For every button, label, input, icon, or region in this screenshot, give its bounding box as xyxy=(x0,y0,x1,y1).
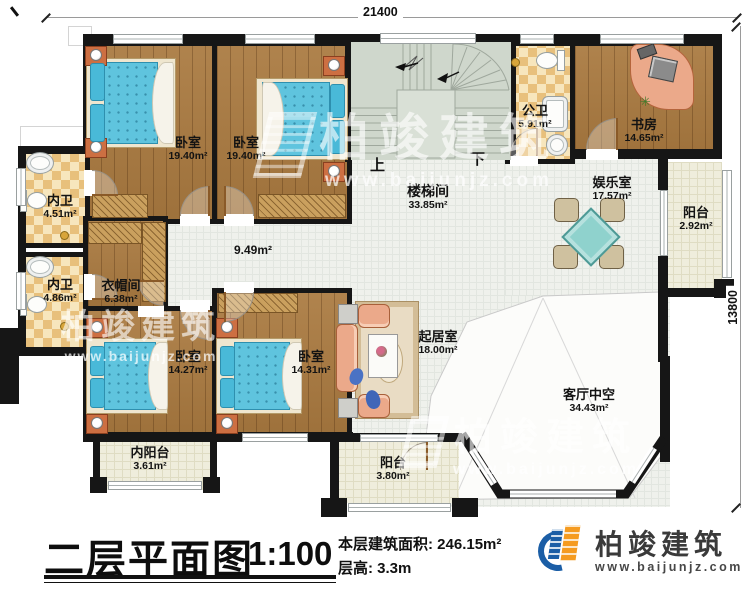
wall-ent-right-lower xyxy=(658,256,668,362)
title-block: 二层平面图 1:100 本层建筑面积: 246.15m² 层高: 3.3m 柏竣… xyxy=(0,525,750,593)
dimension-tick xyxy=(41,13,51,23)
bed-pillow xyxy=(90,63,105,101)
bed-pillow xyxy=(90,378,105,408)
floor-height-row: 层高: 3.3m xyxy=(338,557,501,581)
nightstand xyxy=(86,414,108,434)
door-gap xyxy=(586,149,618,160)
drawing-scale: 1:100 xyxy=(248,535,332,573)
window xyxy=(245,34,315,44)
door-leaf xyxy=(224,292,226,322)
door-leaf xyxy=(92,194,118,196)
window xyxy=(16,168,26,206)
lamp-icon xyxy=(221,321,233,333)
sink xyxy=(26,256,54,278)
bed-pillow xyxy=(330,84,345,118)
room-label-living: 起居室18.00m² xyxy=(398,330,478,356)
lamp-icon xyxy=(221,417,233,429)
room-label-balcony-bottom: 阳台3.80m² xyxy=(352,456,434,482)
lamp-icon xyxy=(91,417,103,429)
wall-left-column xyxy=(0,328,19,404)
brand-text-group: 柏竣建筑 www.baijunjz.com xyxy=(595,530,743,575)
room-label-bedroom-bottom-left: 卧室14.27m² xyxy=(150,350,226,376)
dimension-right-value: 13800 xyxy=(726,286,740,329)
bed-pillow xyxy=(90,104,105,142)
door-gap xyxy=(138,306,164,317)
window xyxy=(380,33,476,44)
bed-pillow xyxy=(220,378,235,408)
wardrobe-hatch xyxy=(88,222,142,244)
pillar-balcony-bottom-left xyxy=(321,498,347,517)
dimension-tick xyxy=(732,13,742,23)
dimension-tick xyxy=(731,503,741,513)
floor-drain xyxy=(60,231,69,240)
room-label-public-bath: 公卫5.91m² xyxy=(504,104,566,130)
lamp-icon xyxy=(91,321,103,333)
door-leaf xyxy=(224,186,226,216)
toilet-tank xyxy=(557,50,565,71)
bed-mattress xyxy=(104,62,158,144)
floor-info: 本层建筑面积: 246.15m² 层高: 3.3m xyxy=(338,533,501,581)
side-table xyxy=(338,398,358,418)
room-label-inner-balcony: 内阳台3.61m² xyxy=(110,446,190,472)
brand-url: www.baijunjz.com xyxy=(595,560,743,574)
lamp-icon xyxy=(90,141,102,153)
door-leaf xyxy=(208,310,210,340)
wall-balcony-bottom-left xyxy=(330,434,339,504)
brand-logo-icon xyxy=(538,525,586,579)
window xyxy=(520,34,554,44)
nightstand xyxy=(323,56,345,76)
window xyxy=(113,34,183,44)
plant-icon: ✳ xyxy=(640,94,651,110)
floor-height-value: 3.3m xyxy=(377,560,411,577)
sink xyxy=(26,152,54,174)
lamp-icon xyxy=(328,59,340,71)
window xyxy=(16,272,26,310)
wall-bath-block-bottom xyxy=(18,348,90,356)
wall-study-right xyxy=(714,34,722,159)
toilet xyxy=(536,52,558,69)
staircase xyxy=(345,30,517,162)
wall-ent-right-upper xyxy=(658,154,668,190)
nightstand xyxy=(216,414,238,434)
pillar-inner-balcony-left xyxy=(90,477,107,493)
room-label-void: 客厅中空34.43m² xyxy=(542,388,636,414)
room-label-hallway: 9.49m² xyxy=(220,244,286,257)
room-label-bath-bottom: 内卫4.86m² xyxy=(32,278,88,304)
lamp-icon xyxy=(90,49,102,61)
pillar-inner-balcony-right xyxy=(203,477,220,493)
lamp-icon xyxy=(328,165,340,177)
bay-window xyxy=(448,424,673,519)
bed-pillow xyxy=(330,120,345,154)
door-leaf xyxy=(208,186,210,216)
room-label-balcony-right: 阳台2.92m² xyxy=(664,206,728,232)
brand-name: 柏竣建筑 xyxy=(595,530,743,561)
room-label-entertainment: 娱乐室17.57m² xyxy=(570,176,654,202)
room-label-study: 书房14.65m² xyxy=(604,118,684,144)
wall-bath-block-top xyxy=(18,146,90,154)
railing-inner-balcony xyxy=(108,481,202,490)
room-label-bedroom-bottom-mid: 卧室14.31m² xyxy=(272,350,350,376)
sink xyxy=(546,134,568,156)
armchair xyxy=(358,304,390,328)
flower-vase xyxy=(376,346,387,357)
dimension-top-value: 21400 xyxy=(358,5,403,19)
side-table xyxy=(338,304,358,324)
room-label-stairwell: 楼梯间33.85m² xyxy=(382,184,474,211)
room-label-cloakroom: 衣帽间6.38m² xyxy=(84,279,158,305)
wardrobe-hatch xyxy=(92,194,148,218)
floor-area-value: 246.15m² xyxy=(437,536,501,553)
room-label-bedroom-top-mid: 卧室19.40m² xyxy=(208,136,284,162)
title-underline xyxy=(44,575,336,583)
room-label-bath-top: 内卫4.51m² xyxy=(32,194,88,220)
nightstand xyxy=(86,318,108,338)
floor-drain xyxy=(60,322,69,331)
brand-logo: 柏竣建筑 www.baijunjz.com xyxy=(538,525,743,579)
stairs-down-label: 下 xyxy=(470,148,485,169)
floor-plan-canvas: ✳ 卧室19.40m² 卧室19.40m² 楼梯间33.85m² 公卫5.91m… xyxy=(0,0,750,593)
bed-pillow xyxy=(90,346,105,376)
window xyxy=(360,434,438,442)
wardrobe-hatch xyxy=(258,194,346,218)
floor-area-row: 本层建筑面积: 246.15m² xyxy=(338,533,501,557)
dimension-line-right xyxy=(740,26,741,508)
railing-balcony-bottom xyxy=(348,503,451,512)
cursor-mark xyxy=(10,6,19,17)
bed-blanket xyxy=(152,62,174,144)
floor-area-label: 本层建筑面积: xyxy=(338,536,433,553)
floor-height-label: 层高: xyxy=(338,560,373,577)
door-leaf xyxy=(536,128,538,156)
window xyxy=(242,433,308,442)
nightstand xyxy=(323,162,345,182)
stairs-up-label: 上 xyxy=(370,154,385,175)
window xyxy=(600,34,684,44)
